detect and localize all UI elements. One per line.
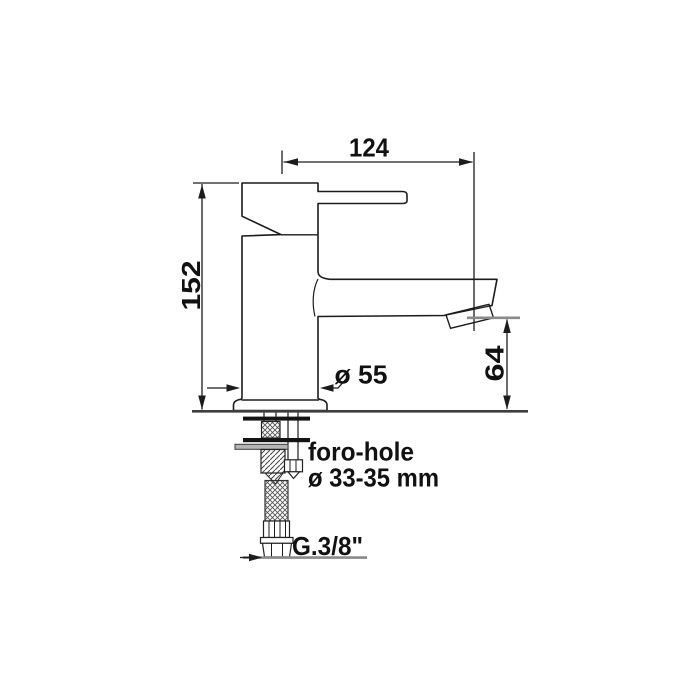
thread-callout: G.3/8"	[240, 531, 367, 561]
dim-124-label: 124	[349, 133, 389, 163]
hose-nut	[263, 543, 292, 557]
stud-nut	[285, 460, 303, 472]
dim-55-arrow-right	[320, 384, 334, 392]
dim-64: 64	[467, 318, 520, 410]
dim-152-arrow-top	[198, 185, 206, 199]
threaded-shank	[261, 450, 285, 474]
technical-drawing-page: 124 152 ø 55 64 foro-hole ø 33-35 mm G.3…	[0, 0, 700, 700]
dim-152-label: 152	[176, 261, 206, 311]
dim-124-arrow-left	[284, 158, 298, 166]
washer-bar-bottom	[243, 438, 310, 442]
threaded-collar	[262, 422, 281, 439]
hole-diameter-label: ø 33-35 mm	[308, 463, 439, 493]
dim-64-arrow-top	[503, 319, 511, 333]
dim-152: 152	[176, 183, 239, 410]
flex-hose-braid	[265, 481, 288, 522]
faucet-dimension-drawing: 124 152 ø 55 64 foro-hole ø 33-35 mm G.3…	[0, 0, 700, 700]
thread-arrow	[249, 554, 262, 562]
mounting-plate	[235, 444, 288, 449]
dim-55-label: ø 55	[335, 360, 388, 390]
dim-55-arrow-left	[227, 384, 241, 392]
dim-152-arrow-bottom	[198, 396, 206, 410]
dim-64-arrow-bottom	[503, 396, 511, 410]
washer-bar-top	[243, 417, 310, 421]
thread-size-label: G.3/8"	[292, 531, 363, 561]
hose-nut-flange	[261, 538, 294, 544]
dim-64-label: 64	[480, 345, 510, 382]
stud-tip	[288, 472, 300, 479]
dim-124-arrow-right	[459, 158, 473, 166]
